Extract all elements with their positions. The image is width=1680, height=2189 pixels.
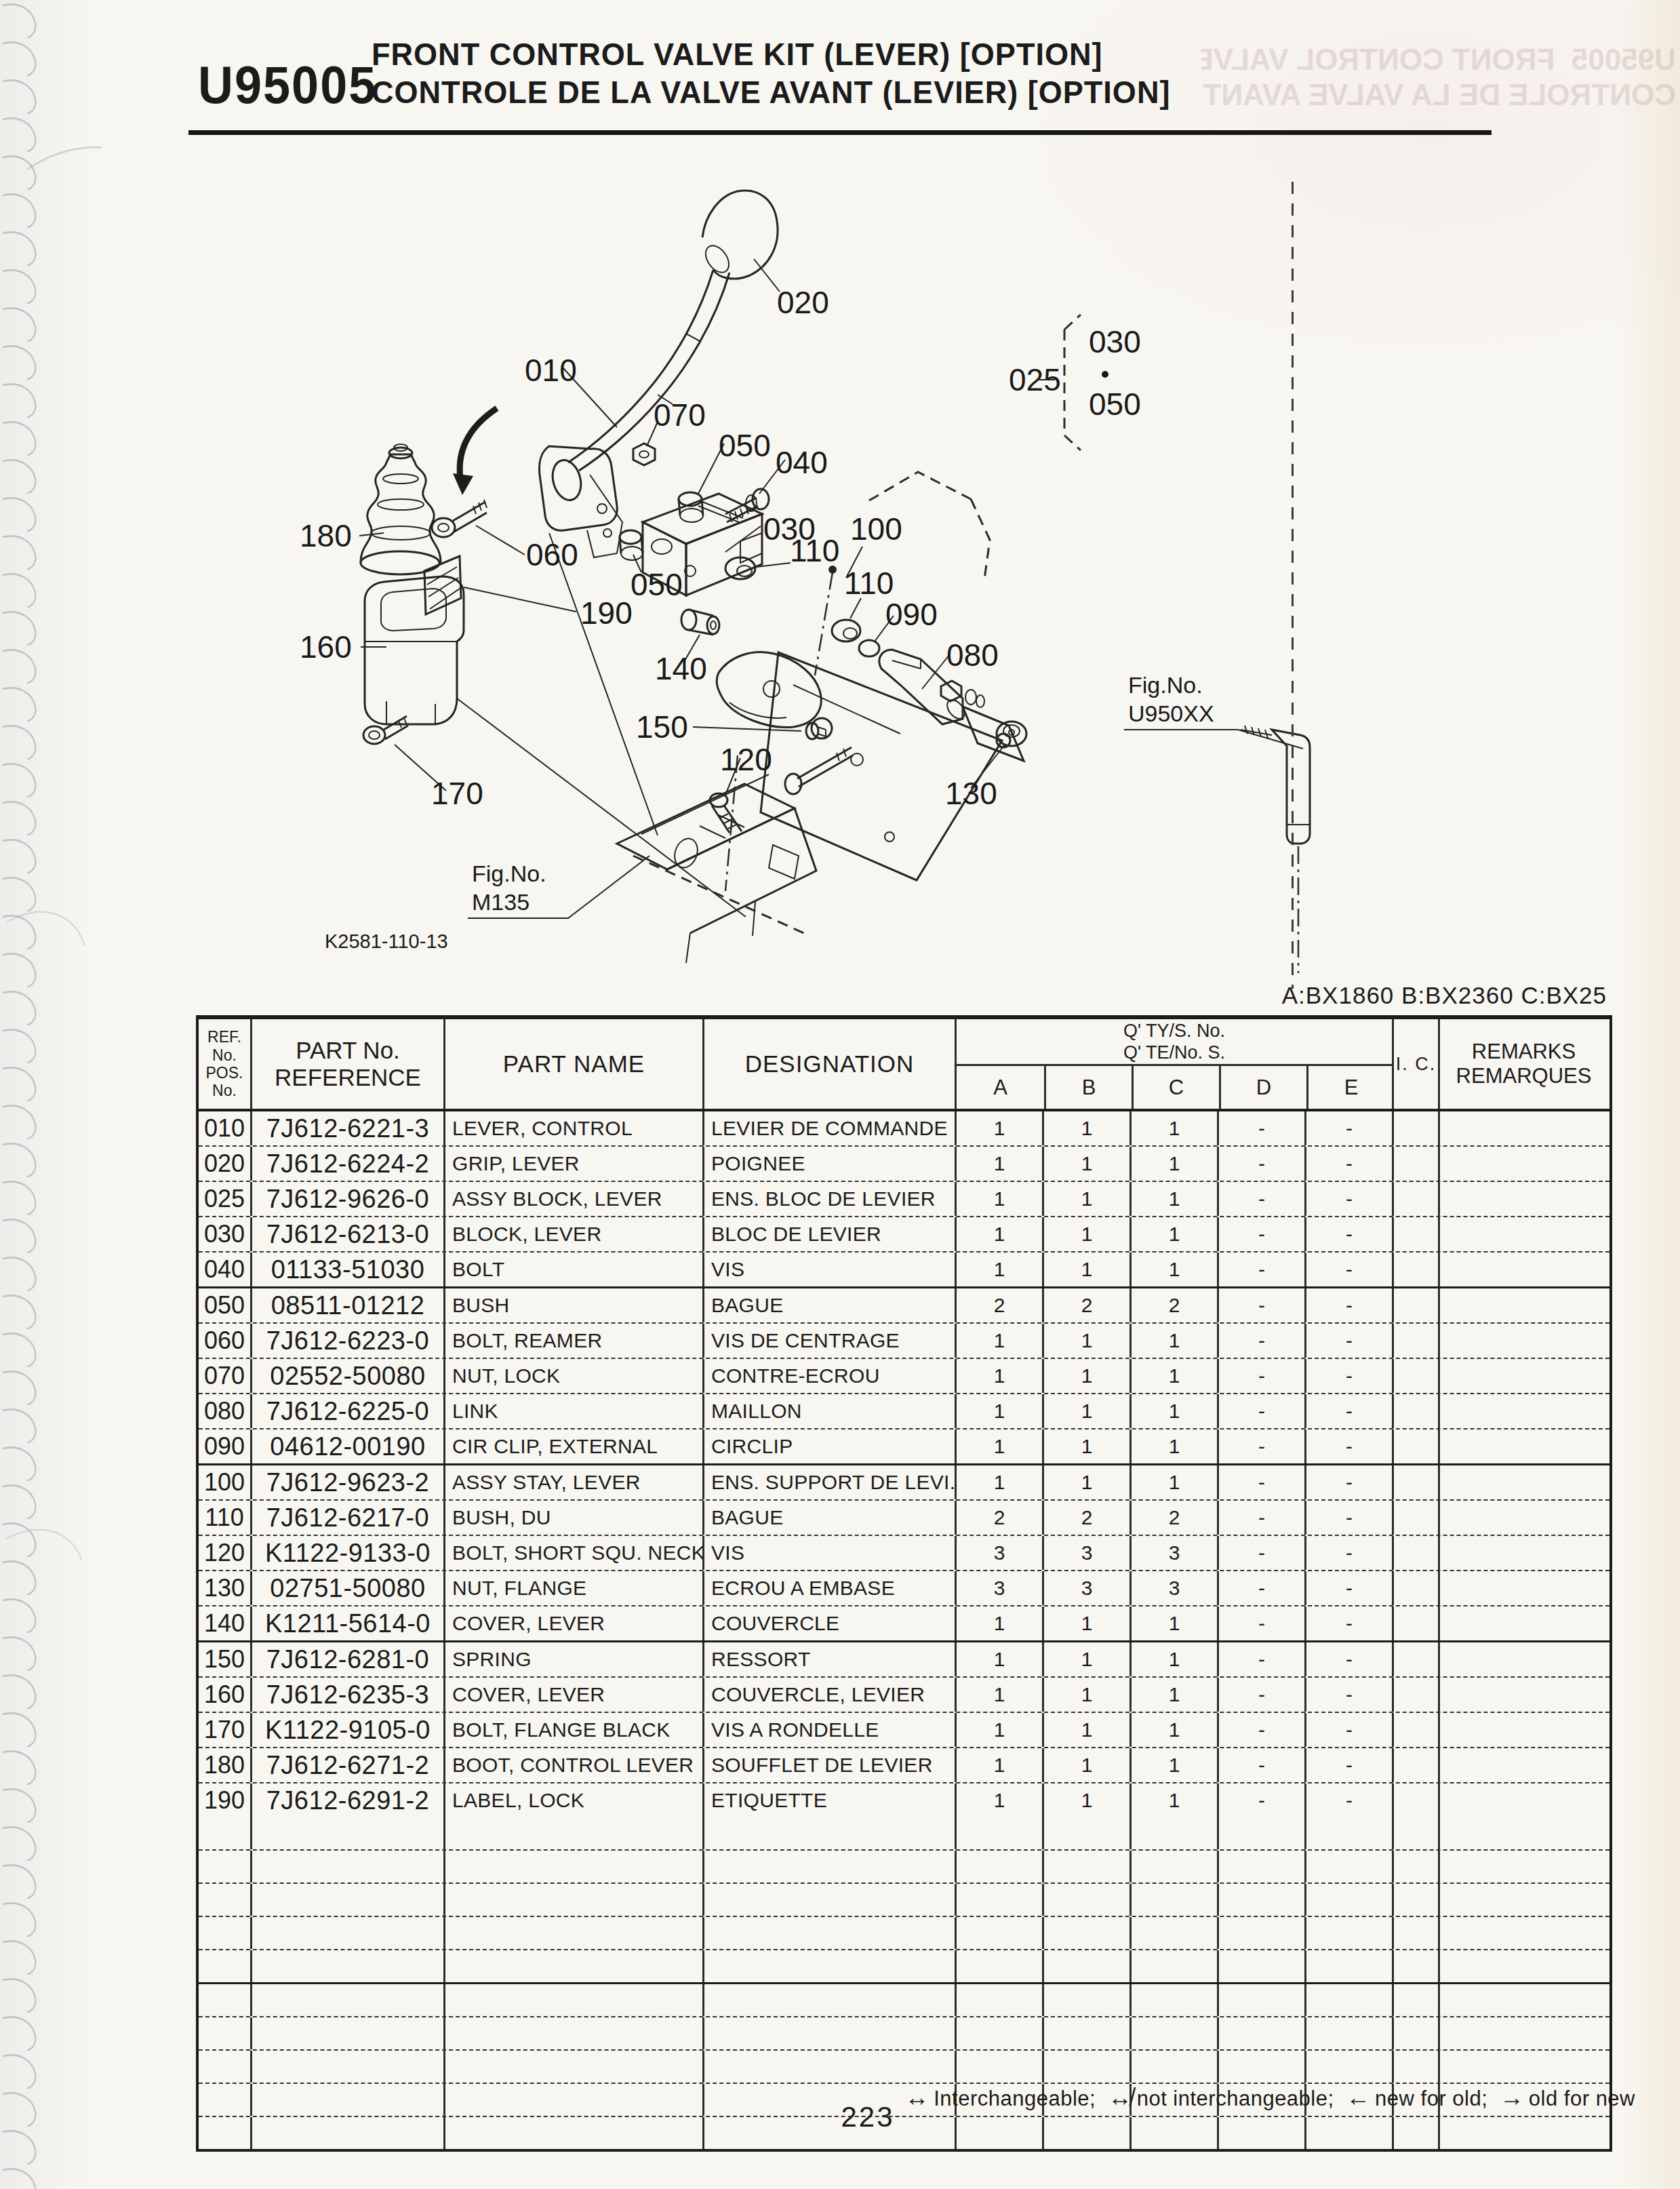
ref-no-cell: 020 (199, 1147, 250, 1181)
qty-header: Q' TY/S. No. Q' TE/No. S. (957, 1019, 1392, 1066)
qty-c-cell: 2 (1129, 1288, 1217, 1322)
binding-edge-marks (0, 0, 102, 2189)
qty-d-cell: - (1217, 1182, 1304, 1216)
part-no-cell: 7J612-6224-2 (250, 1147, 443, 1181)
ic-cell (1392, 1917, 1438, 1949)
qty-a-cell (955, 1851, 1042, 1882)
part-name-cell (443, 2017, 702, 2049)
col-header-ic: I. C. (1392, 1019, 1438, 1109)
bleed-through-ghost-title: U95005 FRONT CONTROL VALVE KIT (LEVER) [… (1201, 42, 1676, 130)
qty-c-cell: 1 (1129, 1182, 1217, 1216)
remarks-cell (1438, 1984, 1607, 2016)
ic-cell (1392, 1642, 1438, 1676)
qty-e-cell (1304, 1984, 1392, 2016)
qty-a-cell (955, 2017, 1042, 2049)
qty-b-cell: 1 (1042, 1359, 1129, 1393)
table-row: 020 7J612-6224-2 GRIP, LEVER POIGNEE 1 1… (199, 1145, 1609, 1181)
qty-e-cell: - (1304, 1182, 1392, 1216)
part-circlip (859, 640, 879, 656)
designation-cell (702, 2051, 955, 2083)
callout-050-grouped: 050 (1089, 387, 1141, 422)
remarks-line1: REMARKS (1472, 1040, 1576, 1064)
qty-d-cell: - (1217, 1429, 1304, 1463)
ref-no-cell: 070 (199, 1359, 250, 1393)
designation-cell: ETIQUETTE (702, 1783, 955, 1817)
qty-a-cell: 1 (955, 1748, 1042, 1782)
callout-140: 140 (655, 651, 707, 686)
qty-b-cell: 1 (1042, 1713, 1129, 1747)
part-no-cell: 02552-50080 (250, 1359, 443, 1393)
ref-no-cell: 050 (199, 1288, 250, 1322)
qty-d-cell (1217, 1851, 1304, 1882)
qty-b-cell (1042, 2117, 1129, 2149)
remarks-cell (1438, 1606, 1607, 1640)
qty-a-cell: 1 (955, 1147, 1042, 1181)
comb-binding-pattern (0, 0, 81, 2189)
table-row: 080 7J612-6225-0 LINK MAILLON 1 1 1 - - (199, 1393, 1609, 1428)
part-no-cell (250, 2017, 443, 2049)
callout-170: 170 (431, 776, 483, 811)
remarks-cell (1438, 1713, 1607, 1747)
qty-b-cell: 1 (1042, 1783, 1129, 1817)
part-no-cell: 02751-50080 (250, 1571, 443, 1605)
table-row (199, 1982, 1609, 2016)
remarks-cell (1438, 2051, 1607, 2083)
ic-cell (1392, 1111, 1438, 1145)
part-name-cell (443, 1884, 702, 1916)
designation-cell (702, 1817, 955, 1849)
qty-b-cell: 1 (1042, 1642, 1129, 1676)
ic-cell (1392, 1678, 1438, 1712)
ref-line1: REF. No. (199, 1028, 250, 1064)
remarks-cell (1438, 1748, 1607, 1782)
designation-cell: COUVERCLE, LEVIER (702, 1678, 955, 1712)
table-row: 130 02751-50080 NUT, FLANGE ECROU A EMBA… (199, 1570, 1609, 1605)
qty-line2: Q' TE/No. S. (1123, 1042, 1225, 1063)
table-row: 120 K1122-9133-0 BOLT, SHORT SQU. NECK V… (199, 1535, 1609, 1570)
qty-e-cell: - (1304, 1147, 1392, 1181)
qty-d-cell (1217, 1984, 1304, 2016)
part-line2: REFERENCE (275, 1064, 421, 1091)
remarks-cell (1438, 1465, 1607, 1499)
ic-cell (1392, 1748, 1438, 1782)
qty-c-cell (1129, 1917, 1217, 1949)
designation-cell: BAGUE (702, 1501, 955, 1535)
table-row: 030 7J612-6213-0 BLOCK, LEVER BLOC DE LE… (199, 1216, 1609, 1251)
table-row: 140 K1211-5614-0 COVER, LEVER COUVERCLE … (199, 1605, 1609, 1640)
callout-070: 070 (654, 397, 706, 433)
ref-no-cell: 150 (199, 1642, 250, 1676)
part-no-cell: 7J612-6291-2 (250, 1783, 443, 1817)
remarks-line2: REMARQUES (1456, 1064, 1592, 1088)
qty-a-cell (955, 2051, 1042, 2083)
part-name-cell: BLOCK, LEVER (443, 1217, 702, 1251)
callout-120: 120 (720, 742, 772, 777)
callout-010: 010 (525, 353, 577, 388)
qty-c-cell: 1 (1129, 1111, 1217, 1145)
qty-e-cell: - (1304, 1642, 1392, 1676)
qty-d-cell: - (1217, 1288, 1304, 1322)
table-row (199, 2016, 1609, 2049)
callout-110a: 110 (790, 533, 839, 568)
remarks-cell (1438, 1324, 1607, 1358)
ref-no-cell: 120 (199, 1536, 250, 1570)
part-nut-lock (633, 443, 655, 465)
designation-cell: CIRCLIP (702, 1429, 955, 1463)
remarks-cell (1438, 1394, 1607, 1428)
part-name-cell: BOLT, FLANGE BLACK (443, 1713, 702, 1747)
qty-d-cell: - (1217, 1359, 1304, 1393)
qty-d-cell: - (1217, 1536, 1304, 1570)
qty-c-cell: 3 (1129, 1571, 1217, 1605)
remarks-cell (1438, 1253, 1607, 1286)
qty-d-cell: - (1217, 1111, 1304, 1145)
qty-e-cell: - (1304, 1429, 1392, 1463)
callout-030-grouped: 030 (1089, 324, 1141, 359)
ref-no-cell (199, 1817, 250, 1849)
table-row: 170 K1122-9105-0 BOLT, FLANGE BLACK VIS … (199, 1712, 1609, 1747)
qty-d-cell (1217, 2117, 1304, 2149)
qty-b-cell: 1 (1042, 1217, 1129, 1251)
ic-cell (1392, 1217, 1438, 1251)
qty-b-cell (1042, 1851, 1129, 1882)
table-row: 180 7J612-6271-2 BOOT, CONTROL LEVER SOU… (199, 1747, 1609, 1782)
table-row (199, 1849, 1609, 1882)
part-no-cell (250, 1817, 443, 1849)
qty-e-cell: - (1304, 1606, 1392, 1640)
ic-cell (1392, 1429, 1438, 1463)
qty-col-a: A (957, 1066, 1044, 1109)
designation-cell (702, 2017, 955, 2049)
designation-cell: BAGUE (702, 1288, 955, 1322)
col-header-ref: REF. No. POS. No. (199, 1019, 250, 1109)
part-no-cell: 7J612-6225-0 (250, 1394, 443, 1428)
table-row: 150 7J612-6281-0 SPRING RESSORT 1 1 1 - … (199, 1640, 1609, 1676)
ic-cell (1392, 1536, 1438, 1570)
ic-cell (1392, 1465, 1438, 1499)
qty-a-cell (955, 1917, 1042, 1949)
part-label-lock (424, 556, 461, 614)
qty-c-cell: 1 (1129, 1783, 1217, 1817)
qty-a-cell: 3 (955, 1571, 1042, 1605)
models-note: A:BX1860 B:BX2360 C:BX25 (1017, 982, 1607, 1009)
ref-no-cell: 140 (199, 1606, 250, 1640)
callout-150: 150 (636, 709, 688, 745)
part-name-cell: CIR CLIP, EXTERNAL (443, 1429, 702, 1463)
elbow-joint-pin (1241, 726, 1310, 973)
exploded-parts-diagram: 025 030 050 (183, 156, 1336, 1004)
part-no-cell: K1122-9133-0 (250, 1536, 443, 1570)
qty-b-cell: 1 (1042, 1606, 1129, 1640)
qty-d-cell: - (1217, 1324, 1304, 1358)
part-name-cell: BOLT, REAMER (443, 1324, 702, 1358)
remarks-cell (1438, 1917, 1607, 1949)
callout-020: 020 (777, 285, 829, 320)
remarks-cell (1438, 1571, 1607, 1605)
qty-d-cell: - (1217, 1642, 1304, 1676)
new-for-old-icon: ← (1334, 2083, 1376, 2111)
ref-no-cell: 040 (199, 1253, 250, 1286)
table-row (199, 1817, 1609, 1849)
qty-a-cell: 1 (955, 1465, 1042, 1499)
part-name-cell: NUT, LOCK (443, 1359, 702, 1393)
scanned-catalog-page: U95005 FRONT CONTROL VALVE KIT (LEVER) [… (0, 0, 1680, 2189)
ic-cell (1392, 1501, 1438, 1535)
page-number: 223 (800, 2101, 936, 2133)
part-no-cell: 7J612-9626-0 (250, 1182, 443, 1216)
part-name-cell (443, 1984, 702, 2016)
ic-cell (1392, 2117, 1438, 2149)
qty-d-cell (1217, 2051, 1304, 2083)
legend-text-3: new for old; (1375, 2087, 1487, 2110)
drawing-code: K2581-110-13 (325, 930, 448, 952)
qty-a-cell: 3 (955, 1536, 1042, 1570)
ref-no-cell: 170 (199, 1713, 250, 1747)
part-name-cell (443, 1817, 702, 1849)
qty-c-cell (1129, 1950, 1217, 1982)
qty-b-cell: 1 (1042, 1678, 1129, 1712)
part-name-cell: BUSH, DU (443, 1501, 702, 1535)
part-boot-control-lever (361, 444, 441, 574)
dashed-divider-line (1292, 182, 1294, 989)
part-name-cell: ASSY STAY, LEVER (443, 1465, 702, 1499)
part-no-cell: 08511-01212 (250, 1288, 443, 1322)
part-bolt-reamer (432, 500, 487, 537)
designation-cell: LEVIER DE COMMANDE (702, 1111, 955, 1145)
table-row: 050 08511-01212 BUSH BAGUE 2 2 2 - - (199, 1286, 1609, 1322)
qty-b-cell: 1 (1042, 1253, 1129, 1286)
qty-c-cell (1129, 2051, 1217, 2083)
ref-no-cell: 025 (199, 1182, 250, 1216)
callout-100: 100 (850, 511, 902, 547)
qty-b-cell: 1 (1042, 1111, 1129, 1145)
page-title-block: FRONT CONTROL VALVE KIT (LEVER) [OPTION]… (372, 35, 1187, 111)
ref-no-cell (199, 1984, 250, 2016)
qty-col-c: C (1132, 1066, 1219, 1109)
table-row: 025 7J612-9626-0 ASSY BLOCK, LEVER ENS. … (199, 1181, 1609, 1216)
part-name-cell: ASSY BLOCK, LEVER (443, 1182, 702, 1216)
qty-b-cell: 2 (1042, 1501, 1129, 1535)
part-no-cell (250, 1984, 443, 2016)
part-name-cell (443, 1851, 702, 1882)
table-row: 070 02552-50080 NUT, LOCK CONTRE-ECROU 1… (199, 1358, 1609, 1393)
remarks-cell (1438, 2117, 1607, 2149)
qty-a-cell (955, 1817, 1042, 1849)
qty-e-cell: - (1304, 1324, 1392, 1358)
designation-cell: COUVERCLE (702, 1606, 955, 1640)
col-header-remarks: REMARKS REMARQUES (1438, 1019, 1607, 1109)
qty-e-cell: - (1304, 1394, 1392, 1428)
ic-cell (1392, 1394, 1438, 1428)
not-interchangeable-icon: ↮ (1096, 2083, 1137, 2111)
part-no-cell: 7J612-6281-0 (250, 1642, 443, 1676)
ic-cell (1392, 2017, 1438, 2049)
qty-d-cell: - (1217, 1678, 1304, 1712)
designation-cell (702, 1984, 955, 2016)
ref-no-cell (199, 2117, 250, 2149)
ref-no-cell (199, 1851, 250, 1882)
ref-no-cell: 130 (199, 1571, 250, 1605)
qty-c-cell (1129, 1884, 1217, 1916)
ref-no-cell (199, 2084, 250, 2116)
callout-group-025: 025 030 050 (1009, 315, 1141, 450)
remarks-cell (1438, 1111, 1607, 1145)
qty-e-cell (1304, 1851, 1392, 1882)
qty-e-cell: - (1304, 1253, 1392, 1286)
interchangeability-legend: ↔Interchangeable;↮not interchangeable;←n… (610, 2083, 1635, 2112)
qty-e-cell: - (1304, 1748, 1392, 1782)
qty-e-cell: - (1304, 1501, 1392, 1535)
legend-text-1: Interchangeable; (934, 2087, 1096, 2110)
ref-no-cell: 160 (199, 1678, 250, 1712)
header-rule (188, 130, 1492, 135)
ic-cell (1392, 1182, 1438, 1216)
qty-a-cell: 1 (955, 1253, 1042, 1286)
part-cover-bush (681, 610, 719, 635)
ref-line2: POS. No. (199, 1064, 250, 1100)
qty-a-cell: 2 (955, 1501, 1042, 1535)
qty-d-cell: - (1217, 1606, 1304, 1640)
qty-d-cell: - (1217, 1217, 1304, 1251)
fig-no-value: U950XX (1128, 701, 1214, 726)
qty-d-cell (1217, 2017, 1304, 2049)
designation-cell: ECROU A EMBASE (702, 1571, 955, 1605)
table-row: 040 01133-51030 BOLT VIS 1 1 1 - - (199, 1251, 1609, 1286)
part-no-cell: 7J612-6271-2 (250, 1748, 443, 1782)
part-no-cell: 01133-51030 (250, 1253, 443, 1286)
qty-col-d: D (1219, 1066, 1306, 1109)
part-name-cell: BOLT, SHORT SQU. NECK (443, 1536, 702, 1570)
remarks-cell (1438, 1950, 1607, 1982)
qty-a-cell: 1 (955, 1324, 1042, 1358)
remarks-cell (1438, 1642, 1607, 1676)
table-row (199, 1949, 1609, 1982)
designation-cell: ENS. BLOC DE LEVIER (702, 1182, 955, 1216)
ref-no-cell: 080 (199, 1394, 250, 1428)
part-spring (806, 723, 826, 739)
ic-cell (1392, 1783, 1438, 1817)
qty-e-cell: - (1304, 1217, 1392, 1251)
ic-cell (1392, 1713, 1438, 1747)
table-row: 010 7J612-6221-3 LEVER, CONTROL LEVIER D… (199, 1111, 1609, 1145)
qty-d-cell: - (1217, 1571, 1304, 1605)
qty-c-cell: 1 (1129, 1324, 1217, 1358)
qty-e-cell: - (1304, 1111, 1392, 1145)
callout-080: 080 (946, 637, 999, 673)
page-title-english: FRONT CONTROL VALVE KIT (LEVER) [OPTION] (372, 35, 1170, 73)
qty-b-cell (1042, 1950, 1129, 1982)
qty-e-cell: - (1304, 1678, 1392, 1712)
remarks-cell (1438, 1147, 1607, 1181)
qty-e-cell (1304, 2017, 1392, 2049)
qty-b-cell (1042, 1884, 1129, 1916)
ref-no-cell (199, 2051, 250, 2083)
qty-a-cell: 1 (955, 1429, 1042, 1463)
page-title-french: CONTROLE DE LA VALVE AVANT (LEVIER) [OPT… (372, 73, 1170, 111)
ref-no-cell: 100 (199, 1465, 250, 1499)
legend-text-4: old for new (1529, 2087, 1635, 2110)
qty-c-cell (1129, 2017, 1217, 2049)
qty-c-cell: 1 (1129, 1359, 1217, 1393)
part-no-cell: 7J612-6217-0 (250, 1501, 443, 1535)
ref-no-cell: 010 (199, 1111, 250, 1145)
qty-c-cell: 1 (1129, 1253, 1217, 1286)
qty-c-cell: 1 (1129, 1642, 1217, 1676)
callout-190: 190 (580, 595, 633, 631)
qty-d-cell: - (1217, 1253, 1304, 1286)
designation-cell: ENS. SUPPORT DE LEVI. (702, 1465, 955, 1499)
part-no-cell: 7J612-6213-0 (250, 1217, 443, 1251)
designation-cell: BLOC DE LEVIER (702, 1217, 955, 1251)
qty-col-e: E (1306, 1066, 1394, 1109)
remarks-cell (1438, 1501, 1607, 1535)
part-no-cell: K1211-5614-0 (250, 1606, 443, 1640)
qty-b-cell (1042, 1984, 1129, 2016)
ref-no-cell (199, 2017, 250, 2049)
designation-cell (702, 1950, 955, 1982)
callout-090: 090 (885, 597, 938, 632)
remarks-cell (1438, 1884, 1607, 1916)
qty-e-cell: - (1304, 1536, 1392, 1570)
part-no-cell: 7J612-6223-0 (250, 1324, 443, 1358)
part-no-cell: 7J612-6235-3 (250, 1678, 443, 1712)
qty-d-cell: - (1217, 1394, 1304, 1428)
part-bush-du-2 (832, 620, 860, 642)
remarks-cell (1438, 1536, 1607, 1570)
part-name-cell: BOOT, CONTROL LEVER (443, 1748, 702, 1782)
qty-c-cell: 1 (1129, 1217, 1217, 1251)
qty-e-cell (1304, 1817, 1392, 1849)
qty-e-cell (1304, 2117, 1392, 2149)
ghost-code: U95005 (1572, 43, 1676, 76)
callout-110b: 110 (844, 566, 894, 601)
qty-b-cell (1042, 1917, 1129, 1949)
qty-a-cell: 1 (955, 1606, 1042, 1640)
table-row: 060 7J612-6223-0 BOLT, REAMER VIS DE CEN… (199, 1322, 1609, 1358)
designation-cell: VIS (702, 1253, 955, 1286)
part-name-cell: COVER, LEVER (443, 1678, 702, 1712)
qty-e-cell: - (1304, 1571, 1392, 1605)
ref-no-cell (199, 1884, 250, 1916)
designation-cell (702, 1917, 955, 1949)
qty-e-cell: - (1304, 1783, 1392, 1817)
qty-b-cell: 1 (1042, 1324, 1129, 1358)
qty-b-cell: 1 (1042, 1182, 1129, 1216)
part-no-cell: 7J612-6221-3 (250, 1111, 443, 1145)
ref-no-cell: 060 (199, 1324, 250, 1358)
qty-col-b: B (1044, 1066, 1132, 1109)
part-no-cell (250, 2051, 443, 2083)
part-name-cell: LABEL, LOCK (443, 1783, 702, 1817)
designation-cell: VIS (702, 1536, 955, 1570)
part-no-cell (250, 1950, 443, 1982)
callout-180: 180 (300, 518, 352, 553)
qty-a-cell (955, 1950, 1042, 1982)
table-body: 010 7J612-6221-3 LEVER, CONTROL LEVIER D… (199, 1111, 1609, 1817)
qty-b-cell: 1 (1042, 1748, 1129, 1782)
remarks-cell (1438, 1817, 1607, 1849)
qty-e-cell: - (1304, 1713, 1392, 1747)
qty-e-cell: - (1304, 1465, 1392, 1499)
ic-cell (1392, 1359, 1438, 1393)
qty-c-cell: 1 (1129, 1429, 1217, 1463)
qty-c-cell: 1 (1129, 1678, 1217, 1712)
designation-cell (702, 1884, 955, 1916)
ic-cell (1392, 1851, 1438, 1882)
qty-c-cell: 1 (1129, 1606, 1217, 1640)
designation-cell: SOUFFLET DE LEVIER (702, 1748, 955, 1782)
fig-no-label: Fig.No. (472, 861, 546, 886)
